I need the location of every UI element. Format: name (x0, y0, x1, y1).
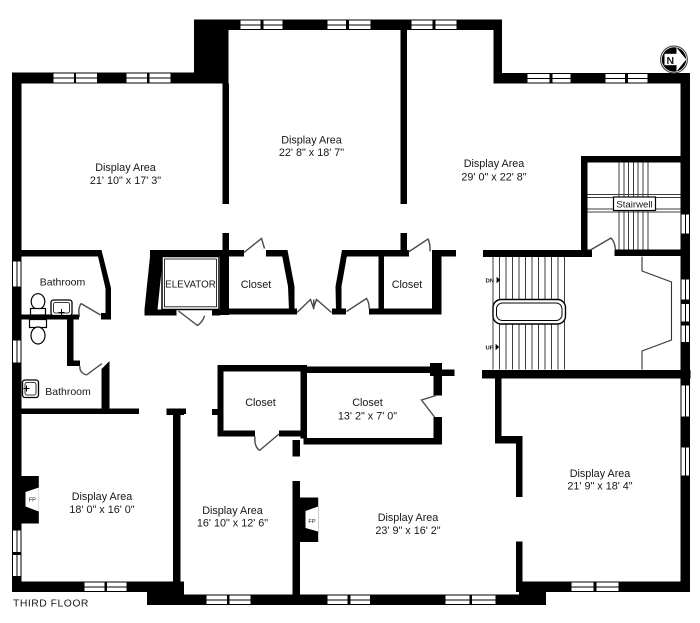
svg-text:Bathroom: Bathroom (45, 386, 91, 398)
svg-text:22' 8" x 18' 7": 22' 8" x 18' 7" (279, 147, 344, 159)
svg-text:DN: DN (486, 279, 495, 285)
svg-text:N: N (667, 55, 675, 67)
svg-text:Stairwell: Stairwell (616, 199, 652, 210)
svg-text:Display Area: Display Area (570, 468, 631, 480)
svg-text:Bathroom: Bathroom (40, 277, 86, 289)
svg-text:Closet: Closet (241, 279, 272, 291)
svg-text:13' 2" x 7' 0": 13' 2" x 7' 0" (338, 410, 397, 422)
svg-text:Display Area: Display Area (378, 512, 439, 524)
svg-text:16' 10" x 12' 6": 16' 10" x 12' 6" (197, 517, 268, 529)
svg-text:Display Area: Display Area (281, 134, 342, 146)
svg-text:23' 9" x 16' 2": 23' 9" x 16' 2" (375, 525, 440, 537)
svg-text:UP: UP (486, 346, 494, 352)
svg-text:21' 10" x 17' 3": 21' 10" x 17' 3" (90, 175, 161, 187)
svg-text:18' 0" x 16' 0": 18' 0" x 16' 0" (69, 504, 134, 516)
svg-text:Display Area: Display Area (464, 158, 525, 170)
svg-text:THIRD FLOOR: THIRD FLOOR (13, 599, 89, 610)
svg-text:29' 0" x 22' 8": 29' 0" x 22' 8" (461, 171, 526, 183)
svg-text:Display Area: Display Area (72, 491, 133, 503)
svg-text:ELEVATOR: ELEVATOR (165, 280, 216, 291)
svg-text:Closet: Closet (352, 397, 383, 409)
svg-text:Closet: Closet (392, 279, 423, 291)
svg-text:Display Area: Display Area (95, 162, 156, 174)
svg-text:21' 9" x 18' 4": 21' 9" x 18' 4" (567, 480, 632, 492)
svg-text:FP: FP (308, 519, 315, 525)
svg-text:Closet: Closet (245, 397, 276, 409)
svg-text:Display Area: Display Area (202, 505, 263, 517)
svg-text:FP: FP (29, 498, 36, 504)
